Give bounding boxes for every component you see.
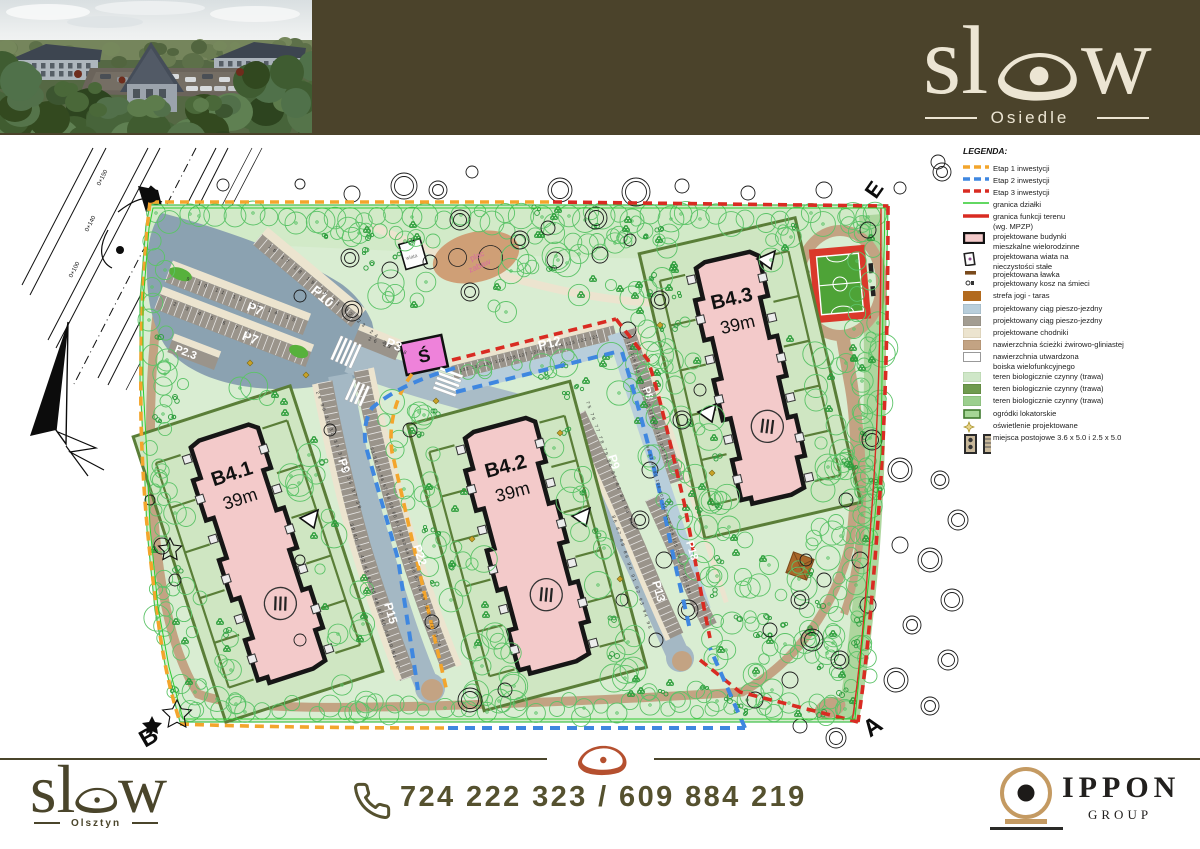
svg-text:E: E	[860, 176, 889, 202]
svg-text:0+150: 0+150	[96, 169, 109, 187]
svg-text:A: A	[858, 711, 888, 743]
svg-text:0+100: 0+100	[68, 261, 81, 279]
svg-text:0+140: 0+140	[84, 215, 97, 233]
